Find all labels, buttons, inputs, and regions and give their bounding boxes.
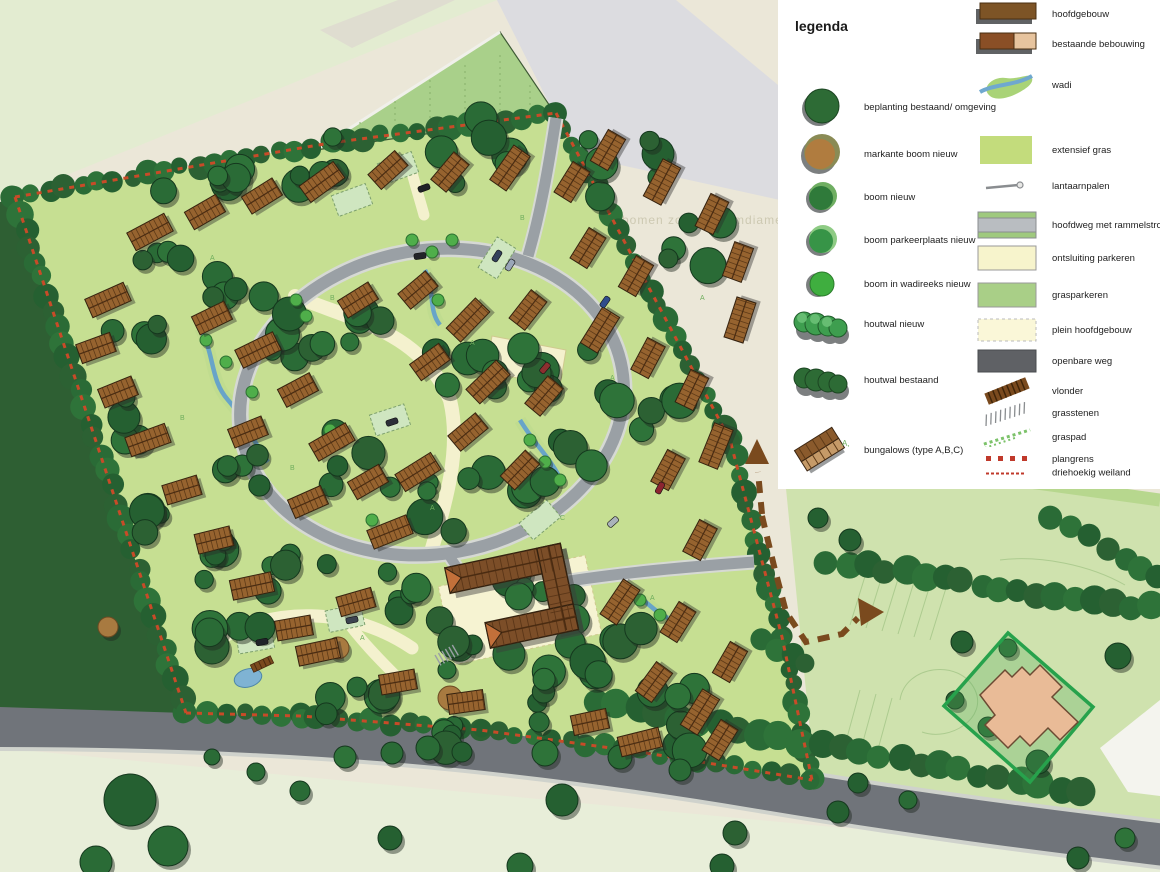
- svg-text:B: B: [330, 295, 335, 302]
- legend-item-label: driehoekig weiland: [1052, 468, 1131, 479]
- legend-item-grass-path: graspad: [974, 427, 1086, 447]
- tree-existing-icon: [790, 85, 852, 129]
- hedge-new-icon: [790, 302, 852, 346]
- legend-item-hedge-existing: houtwal bestaand: [790, 358, 938, 402]
- tree-wadi-new-icon: [790, 265, 852, 303]
- svg-text:C: C: [560, 515, 565, 522]
- extensive-grass-icon: [974, 134, 1040, 166]
- legend-item-label: bestaande bebouwing: [1052, 39, 1145, 50]
- grass-stones-icon: [974, 400, 1040, 426]
- legend-item-wadi: wadi: [974, 64, 1072, 106]
- legend-item-public-road: openbare weg: [974, 348, 1112, 374]
- main-square-icon: [974, 317, 1040, 343]
- legend-item-label: bungalows (type A,B,C): [864, 445, 963, 456]
- legend-item-label: vlonder: [1052, 386, 1083, 397]
- legend-panel: legenda beplanting bestaand/ omgevingmar…: [778, 0, 1160, 489]
- legend-item-main-road: hoofdweg met rammelstrook: [974, 210, 1160, 240]
- legend-item-label: boom in wadireeks nieuw: [864, 279, 971, 290]
- grass-parking-icon: [974, 281, 1040, 309]
- legend-item-main-square: plein hoofdgebouw: [974, 317, 1132, 343]
- legend-item-label: plein hoofdgebouw: [1052, 325, 1132, 336]
- legend-item-label: hoofdweg met rammelstrook: [1052, 220, 1160, 231]
- legend-item-tree-notable-new: markante boom nieuw: [790, 131, 957, 177]
- legend-item-label: extensief gras: [1052, 145, 1111, 156]
- legend-item-label: houtwal bestaand: [864, 375, 938, 386]
- site-plan-screenshot: bomen zonder stamdiameter zijn allema: [0, 0, 1160, 872]
- svg-text:A: A: [360, 635, 365, 642]
- svg-text:A: A: [210, 255, 215, 262]
- legend-item-label: hoofdgebouw: [1052, 9, 1109, 20]
- public-road-icon: [974, 348, 1040, 374]
- legend-item-tree-new: boom nieuw: [790, 177, 915, 217]
- parking-access-icon: [974, 244, 1040, 272]
- legend-item-label: wadi: [1052, 80, 1072, 91]
- svg-text:B: B: [290, 465, 295, 472]
- svg-text:B: B: [520, 215, 525, 222]
- tree-new-icon: [790, 177, 852, 217]
- legend-item-tree-existing: beplanting bestaand/ omgeving: [790, 85, 996, 129]
- legend-item-tree-wadi-new: boom in wadireeks nieuw: [790, 265, 971, 303]
- legend-item-label: ontsluiting parkeren: [1052, 253, 1135, 264]
- tree-parking-new-icon: [790, 220, 852, 260]
- legend-item-label: graspad: [1052, 432, 1086, 443]
- existing-building-icon: [974, 31, 1040, 57]
- wadi-icon: [974, 64, 1040, 106]
- legend-item-tree-parking-new: boom parkeerplaats nieuw: [790, 220, 975, 260]
- svg-text:A: A: [610, 375, 615, 382]
- legend-item-label: markante boom nieuw: [864, 149, 957, 160]
- legend-item-label: grasstenen: [1052, 408, 1099, 419]
- legend-item-triangular-meadow: driehoekig weiland: [974, 468, 1131, 479]
- legend-item-label: plangrens: [1052, 454, 1094, 465]
- triangular-meadow-icon: [974, 468, 1040, 478]
- legend-item-label: boom parkeerplaats nieuw: [864, 235, 975, 246]
- legend-item-lamppost: lantaarnpalen: [974, 179, 1110, 193]
- svg-text:A: A: [700, 295, 705, 302]
- main-building-icon: [974, 1, 1040, 27]
- legend-item-label: grasparkeren: [1052, 290, 1108, 301]
- bungalow-icon: A,: [790, 424, 852, 476]
- legend-item-grass-stones: grasstenen: [974, 400, 1099, 426]
- legend-item-bungalow: A,bungalows (type A,B,C): [790, 424, 963, 476]
- legend-title: legenda: [795, 18, 848, 34]
- legend-item-hedge-new: houtwal nieuw: [790, 302, 924, 346]
- legend-item-parking-access: ontsluiting parkeren: [974, 244, 1135, 272]
- legend-item-label: openbare weg: [1052, 356, 1112, 367]
- legend-item-label: houtwal nieuw: [864, 319, 924, 330]
- tree-notable-new-icon: [790, 131, 852, 177]
- svg-text:A,: A,: [842, 439, 850, 448]
- legend-item-plan-boundary: plangrens: [974, 453, 1094, 465]
- lamppost-icon: [974, 179, 1040, 193]
- main-road-icon: [974, 210, 1040, 240]
- hedge-existing-icon: [790, 358, 852, 402]
- legend-item-existing-building: bestaande bebouwing: [974, 31, 1145, 57]
- legend-item-label: lantaarnpalen: [1052, 181, 1110, 192]
- legend-item-label: boom nieuw: [864, 192, 915, 203]
- plan-boundary-icon: [974, 453, 1040, 465]
- svg-text:A: A: [470, 340, 475, 347]
- svg-text:A: A: [430, 505, 435, 512]
- legend-item-main-building: hoofdgebouw: [974, 1, 1109, 27]
- svg-text:B: B: [180, 415, 185, 422]
- grass-path-icon: [974, 427, 1040, 447]
- legend-item-grass-parking: grasparkeren: [974, 281, 1108, 309]
- svg-text:A: A: [650, 595, 655, 602]
- legend-item-extensive-grass: extensief gras: [974, 134, 1111, 166]
